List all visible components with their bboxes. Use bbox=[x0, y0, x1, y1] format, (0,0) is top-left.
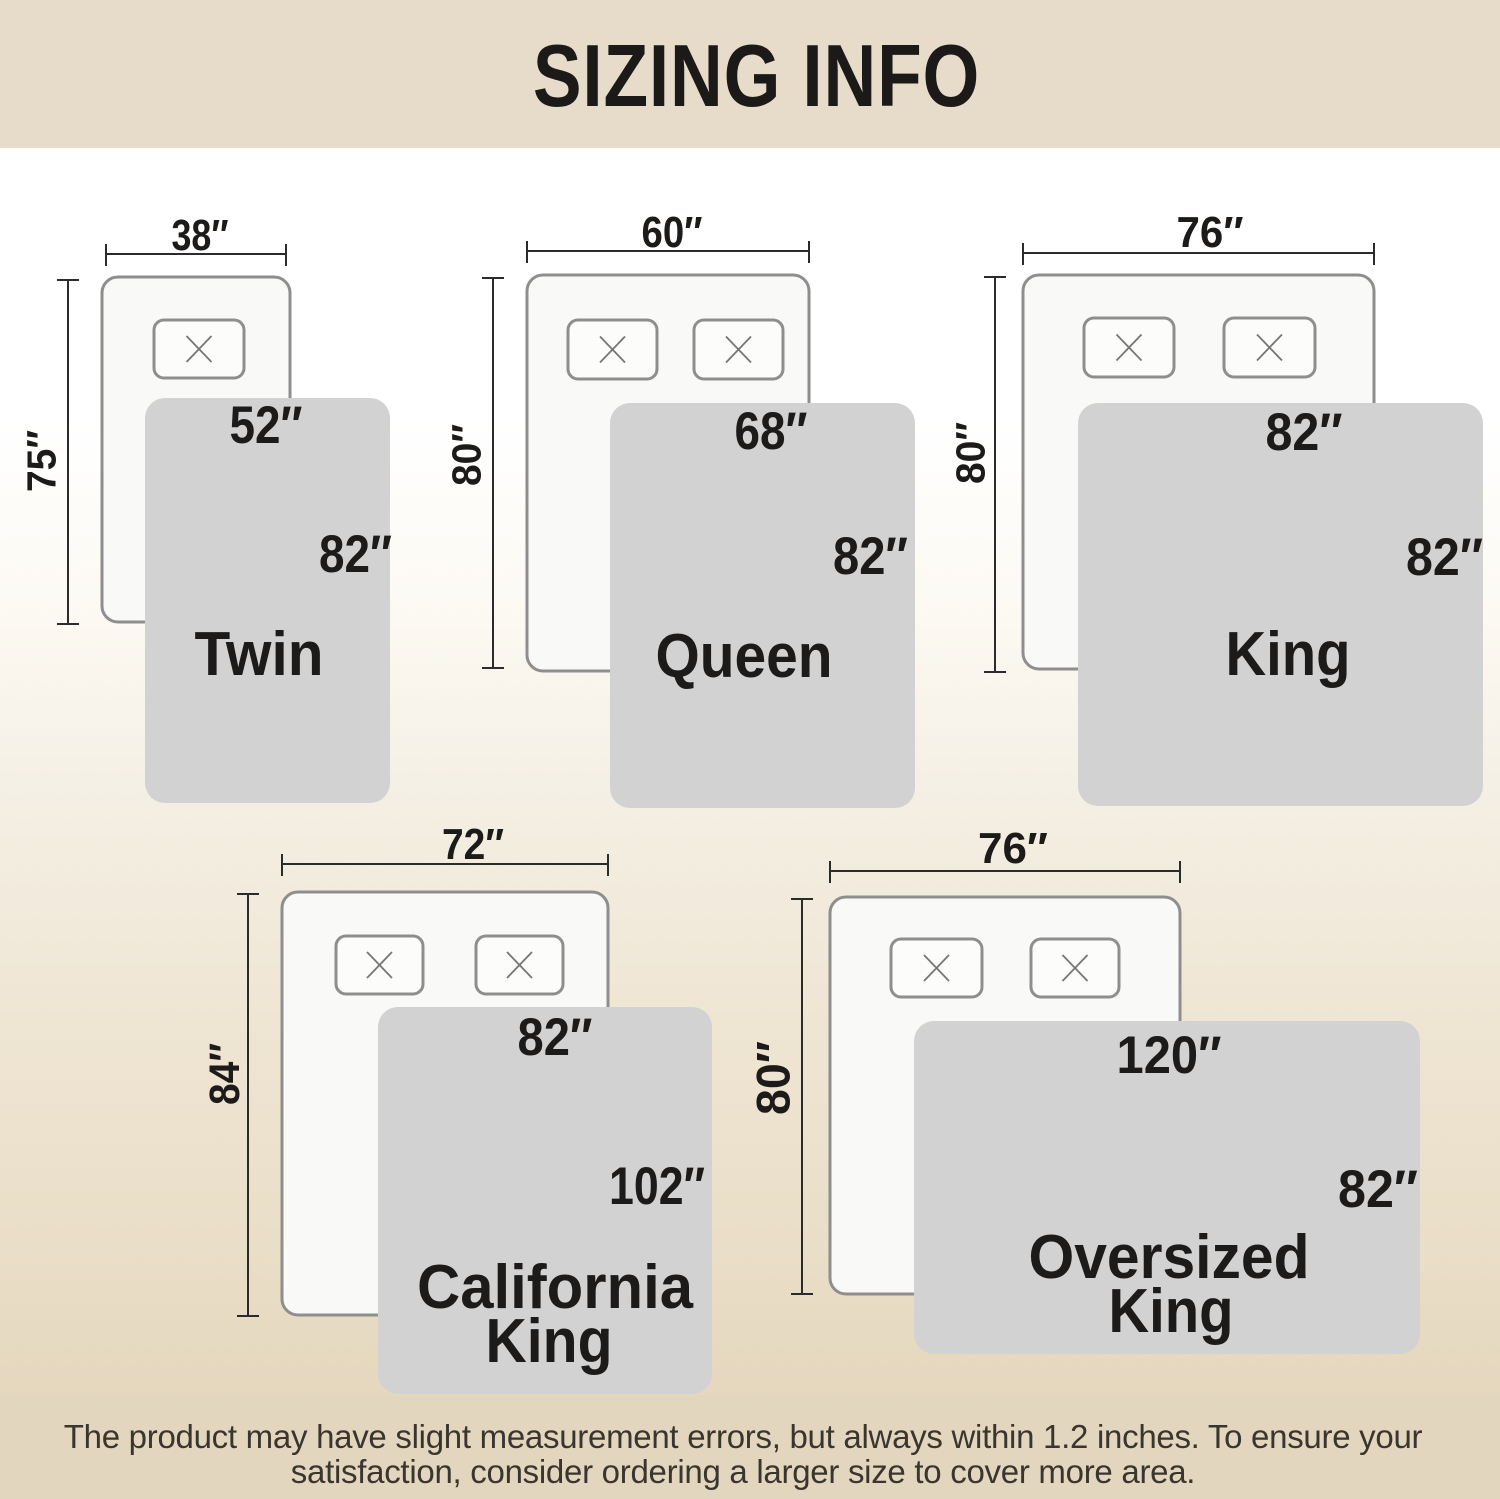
svg-text:38″: 38″ bbox=[172, 211, 229, 260]
svg-text:King: King bbox=[1109, 1277, 1234, 1346]
svg-text:80″: 80″ bbox=[947, 422, 993, 484]
svg-text:King: King bbox=[486, 1307, 613, 1376]
svg-text:82″: 82″ bbox=[1338, 1160, 1418, 1219]
svg-text:82″: 82″ bbox=[319, 525, 392, 584]
svg-text:Twin: Twin bbox=[195, 620, 324, 689]
svg-text:82″: 82″ bbox=[1266, 403, 1343, 462]
svg-text:120″: 120″ bbox=[1117, 1026, 1222, 1085]
svg-text:72″: 72″ bbox=[442, 820, 504, 869]
svg-text:Queen: Queen bbox=[656, 622, 833, 691]
svg-text:68″: 68″ bbox=[735, 402, 808, 461]
svg-text:82″: 82″ bbox=[518, 1008, 593, 1067]
svg-text:52″: 52″ bbox=[230, 396, 303, 455]
svg-text:75″: 75″ bbox=[18, 430, 64, 492]
svg-text:82″: 82″ bbox=[833, 527, 908, 586]
svg-text:84″: 84″ bbox=[201, 1043, 249, 1105]
svg-text:80″: 80″ bbox=[443, 424, 489, 486]
svg-text:82″: 82″ bbox=[1406, 528, 1483, 587]
svg-text:102″: 102″ bbox=[609, 1157, 705, 1216]
svg-text:80″: 80″ bbox=[746, 1041, 799, 1115]
svg-text:60″: 60″ bbox=[642, 208, 703, 257]
svg-text:King: King bbox=[1226, 620, 1351, 689]
svg-text:76″: 76″ bbox=[1177, 208, 1244, 257]
svg-text:76″: 76″ bbox=[978, 824, 1048, 873]
